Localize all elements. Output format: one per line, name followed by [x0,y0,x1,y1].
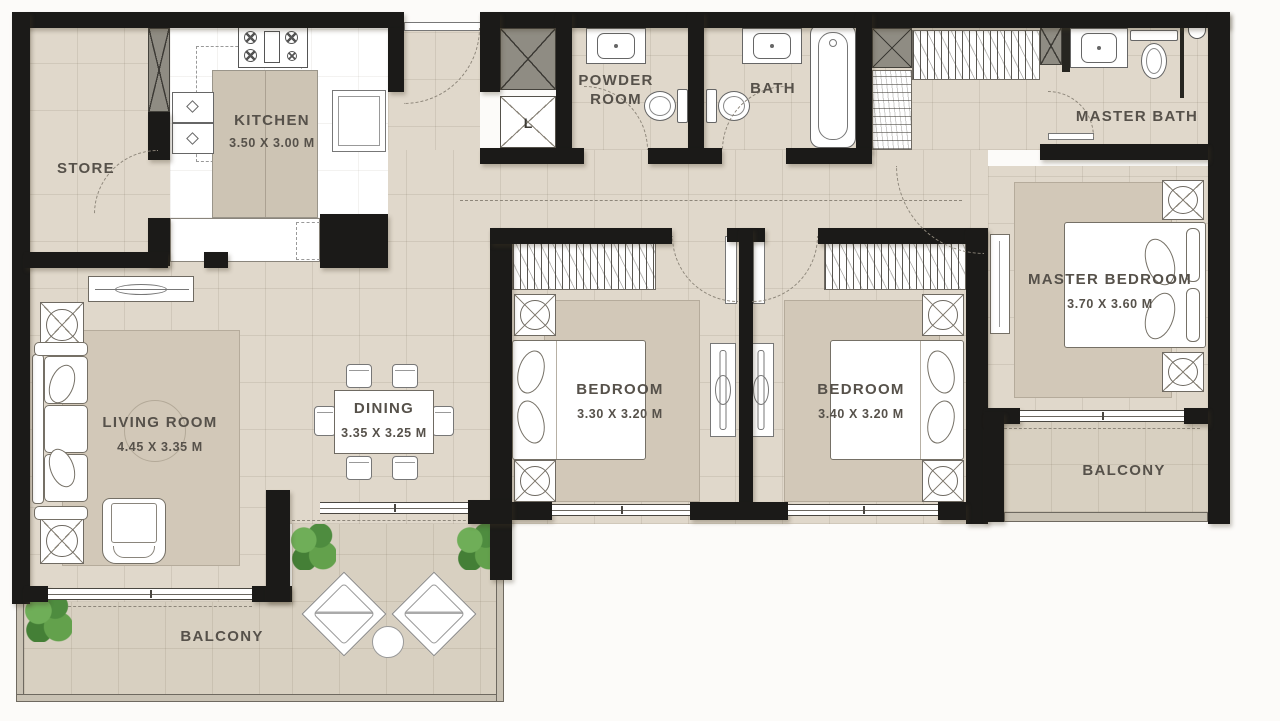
nightstand [514,294,556,336]
wall [24,252,168,268]
wall [490,228,512,580]
shower-partition [1180,28,1184,98]
balcony-boundary-dashed [1004,428,1200,429]
wall [786,148,872,164]
nightstand [922,460,964,502]
armchair [102,498,166,564]
floor-plan: L [0,0,1280,721]
tv-line [95,289,189,290]
door-panel [710,343,736,437]
sink [742,28,802,64]
sink [586,28,646,64]
room-label-balcony-main: BALCONY [180,628,263,647]
room-dims-dining: 3.35 X 3.25 M [341,426,427,442]
wall [739,228,753,504]
wall [690,502,788,520]
room-label-powder-room: POWDER ROOM [560,72,672,110]
window [552,504,690,516]
wall [12,12,30,604]
room-label-dining: DINING [354,400,414,419]
room-dims-bedroom-2: 3.40 X 3.20 M [818,407,904,423]
balcony-boundary-dashed [292,520,496,521]
wall [1208,12,1230,524]
window [48,588,252,600]
dresser-line [999,241,1000,327]
room-label-bedroom-2: BEDROOM [817,381,904,400]
room-label-balcony-master: BALCONY [1082,462,1165,481]
room-label-bedroom-1: BEDROOM [576,381,663,400]
dining-chair [314,406,336,436]
room-dims-bedroom-1: 3.30 X 3.20 M [577,407,663,423]
burner-icon [244,31,257,44]
wall [1040,144,1208,160]
room-label-kitchen: KITCHEN [234,112,310,131]
balcony-railing [1004,512,1208,522]
room-label-bath: BATH [750,80,796,99]
balcony-boundary-dashed [48,606,252,607]
toilet-tank [706,89,717,123]
wall [512,502,552,520]
wall [856,12,872,152]
bathtub [810,24,856,148]
shelf-unit [872,70,912,150]
stove-panel [264,31,280,63]
room-dims-kitchen: 3.50 X 3.00 M [229,136,315,152]
toilet-tank [677,89,688,123]
wall [24,586,48,602]
wall [984,412,1004,522]
wall [648,148,722,164]
window [320,502,468,514]
walk-in-closet [912,30,1040,80]
wall [204,252,228,268]
bed-seam [556,341,557,459]
dining-chair [346,364,372,388]
wall [480,12,500,92]
nightstand [922,294,964,336]
wardrobe-bedroom-1 [512,236,656,290]
lift-box: L [500,96,556,148]
kitchen-sink-unit [172,92,214,154]
wall [938,502,966,520]
wall [688,12,704,152]
lift-label: L [524,115,533,131]
sofa-armrest [34,342,88,356]
window [788,504,938,516]
balcony-railing [16,600,24,698]
burner-icon [285,31,298,44]
dining-chair [346,456,372,480]
shaft-icon [148,28,170,112]
room-label-store: STORE [57,160,115,179]
wall [320,214,388,268]
burner-icon [244,49,257,62]
shaft-icon [1040,27,1062,65]
toilet-bowl [1141,43,1167,79]
bed-seam [920,341,921,459]
wall [1184,408,1208,424]
room-dims-master-bedroom: 3.70 X 3.60 M [1067,297,1153,313]
master-bath-partition [1062,28,1070,72]
stove [238,26,308,68]
wall [468,500,512,524]
dining-chair [392,364,418,388]
wall [480,148,584,164]
side-table [40,518,84,564]
toilet-tank [1130,30,1178,41]
hall-dashed-line [460,200,962,201]
shaft-icon [872,28,912,68]
room-dims-living-room: 4.45 X 3.35 M [117,440,203,456]
headboard-cushion [1186,288,1200,342]
window [1020,410,1184,422]
wall [480,12,1230,28]
nightstand [1162,180,1204,220]
room-label-living-room: LIVING ROOM [102,414,217,433]
wall [388,28,404,92]
elevator [500,28,556,90]
room-label-master-bedroom: MASTER BEDROOM [1028,271,1192,290]
dresser [990,234,1010,334]
burner-icon [287,51,297,61]
wall [266,490,290,602]
fridge [332,90,386,152]
wall [490,228,672,244]
sink [1070,28,1128,68]
wall [24,12,404,28]
balcony-railing [496,578,504,702]
balcony-table [372,626,404,658]
dining-chair [432,406,454,436]
nightstand [1162,352,1204,392]
tv-console [88,276,194,302]
dining-chair [392,456,418,480]
room-label-master-bath: MASTER BATH [1076,108,1198,127]
sofa [32,354,44,504]
sofa-cushion [44,405,88,453]
toilet [1130,30,1178,82]
balcony-railing [16,694,504,702]
sofa-armrest [34,506,88,520]
plant-icon [290,524,336,570]
nightstand [514,460,556,502]
